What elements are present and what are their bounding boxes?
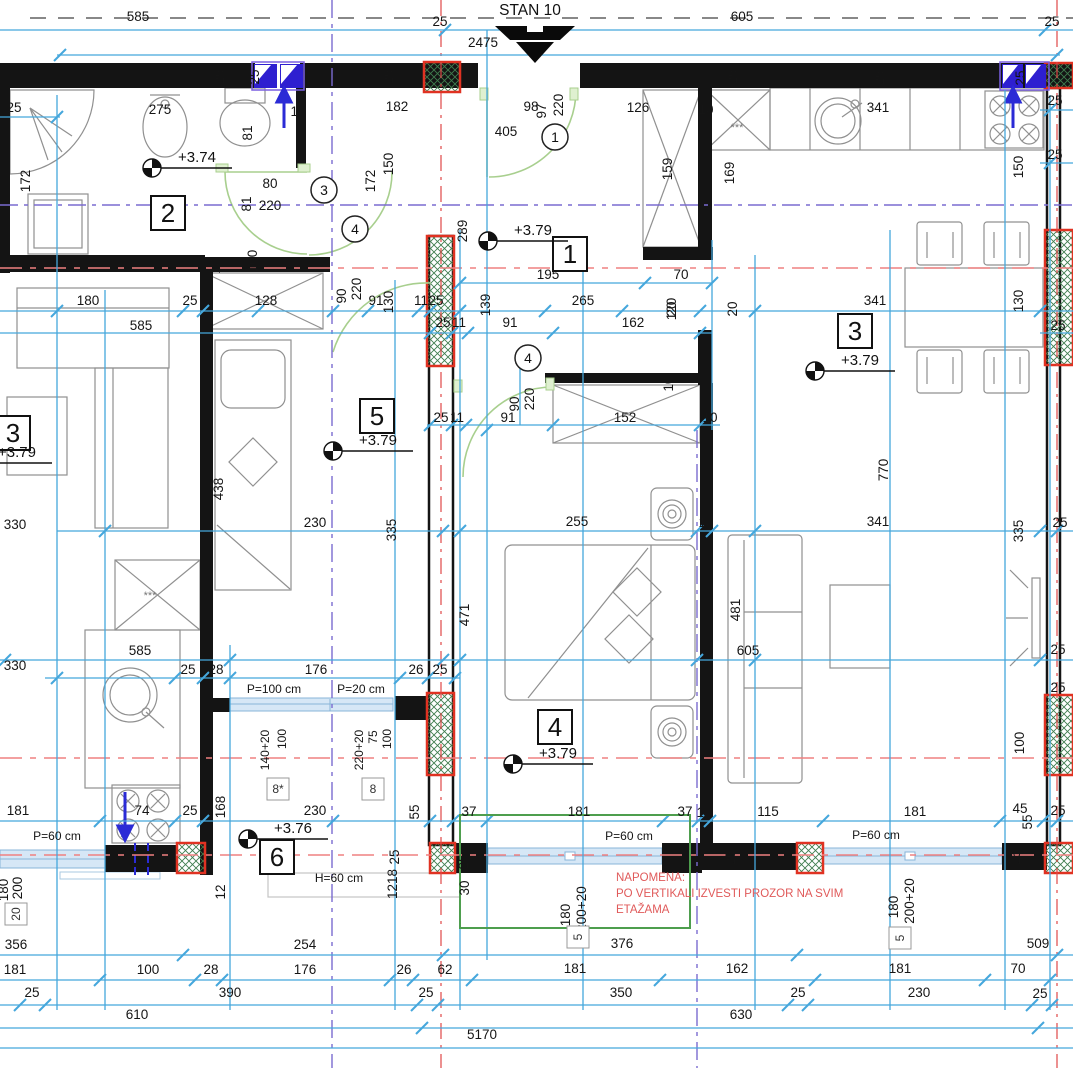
dimension-text: 25 bbox=[247, 69, 262, 84]
level-value: +3.76 bbox=[274, 820, 312, 837]
dimension-text: P=60 cm bbox=[33, 829, 81, 843]
dimension-text: P=100 cm bbox=[247, 682, 301, 696]
dimension-text: 140+20 bbox=[258, 729, 272, 770]
level-value: +3.79 bbox=[0, 444, 36, 461]
dimension-text: H=60 cm bbox=[315, 871, 363, 885]
dimension-text: 200 bbox=[10, 877, 25, 900]
dimension-text: 25 bbox=[180, 662, 195, 677]
dimension-text: 509 bbox=[1027, 936, 1050, 951]
dimension-text: 180 bbox=[886, 896, 901, 919]
level-value: +3.79 bbox=[539, 745, 577, 762]
dimension-text: 176 bbox=[305, 662, 328, 677]
dimension-text: 289 bbox=[455, 220, 470, 243]
dimension-text: P=60 cm bbox=[605, 829, 653, 843]
sofa-living bbox=[728, 535, 802, 783]
dimension-text: 230 bbox=[908, 985, 931, 1000]
dimension-text: 81 bbox=[239, 196, 254, 211]
dimension-text: 168 bbox=[213, 796, 228, 819]
nightstand bbox=[651, 488, 693, 540]
room-number-label: 5 bbox=[370, 401, 384, 431]
dimension-text: 376 bbox=[611, 936, 634, 951]
dimension-text: 330 bbox=[4, 517, 27, 532]
level-value: +3.74 bbox=[178, 149, 216, 166]
dimension-text: 25 bbox=[24, 985, 39, 1000]
freezer-neighbour bbox=[115, 560, 200, 630]
dimension-text: 1218 bbox=[385, 869, 400, 899]
note-text: PO VERTIKALI IZVESTI PROZOR NA SVIM bbox=[616, 888, 843, 900]
dimension-text: 115 bbox=[757, 804, 779, 819]
room-number-label: 3 bbox=[848, 316, 862, 346]
level-symbol-quadrant bbox=[504, 764, 513, 773]
column bbox=[430, 843, 455, 873]
window-id-label: 8 bbox=[370, 782, 377, 796]
dimension-text: 181 bbox=[904, 804, 927, 819]
dimension-text: 181 bbox=[7, 803, 30, 818]
dimension-text: 10 bbox=[696, 805, 711, 820]
double-bed bbox=[505, 488, 695, 758]
dimension-text: 169 bbox=[722, 162, 737, 185]
dimension-text: 10 bbox=[290, 104, 305, 119]
dimension-text: 220 bbox=[259, 198, 282, 213]
level-mark: +3.79 bbox=[504, 745, 593, 773]
dimension-text: 25 bbox=[435, 315, 450, 330]
dimension-text: 74 bbox=[134, 803, 150, 818]
dimension-text: 220 bbox=[551, 94, 566, 117]
dimension-text: 341 bbox=[867, 100, 890, 115]
dimension-text: 481 bbox=[728, 599, 743, 622]
dimension-text: P=20 cm bbox=[337, 682, 385, 696]
dimension-text: 5170 bbox=[467, 1027, 497, 1042]
door-type-number: 3 bbox=[320, 182, 328, 198]
dimension-text: 438 bbox=[211, 478, 226, 501]
dimension-text: 100 bbox=[1012, 732, 1027, 755]
level-symbol-quadrant bbox=[248, 830, 257, 839]
dimension-text: 25 bbox=[387, 849, 402, 864]
level-value: +3.79 bbox=[359, 432, 397, 449]
dimension-text: 335 bbox=[1011, 520, 1026, 543]
dimension-text: 330 bbox=[4, 658, 27, 673]
level-symbol-quadrant bbox=[815, 362, 824, 371]
dimension-text: 120 bbox=[664, 298, 679, 321]
level-symbol-quadrant bbox=[806, 371, 815, 380]
door-frame bbox=[570, 88, 578, 100]
level-value: +3.79 bbox=[514, 222, 552, 239]
dimension-text: 220 bbox=[349, 278, 364, 301]
dimension-text: 200+20 bbox=[574, 886, 589, 931]
door-type-number: 4 bbox=[524, 350, 532, 366]
dimension-text: 25 bbox=[456, 854, 471, 869]
nightstand bbox=[651, 706, 693, 758]
entrance-marker bbox=[495, 26, 575, 63]
dimension-text: 139 bbox=[478, 294, 493, 317]
dimension-text: 37 bbox=[461, 804, 476, 819]
level-symbol-quadrant bbox=[143, 168, 152, 177]
door-type-number: 4 bbox=[351, 221, 359, 237]
note-text: NAPOMENA: bbox=[616, 872, 685, 884]
level-symbol-quadrant bbox=[479, 241, 488, 250]
floor-plan-page: STAN 10 58525247560525252751728181100108… bbox=[0, 0, 1073, 1068]
dimension-text: 26 bbox=[396, 962, 411, 977]
dimension-text: 610 bbox=[126, 1007, 149, 1022]
dimension-text: 172 bbox=[363, 170, 378, 193]
column bbox=[177, 843, 205, 873]
room-number-label: 2 bbox=[161, 198, 175, 228]
dimension-text: 10 bbox=[698, 102, 713, 117]
dimension-text: 220 bbox=[522, 388, 537, 411]
dimension-text: 25 bbox=[381, 69, 396, 84]
dimension-text: 356 bbox=[5, 937, 28, 952]
dimension-text: 11 bbox=[414, 293, 428, 308]
dimension-text: 10 bbox=[702, 410, 717, 425]
window-id-label: 20 bbox=[9, 907, 23, 921]
dimension-text: 181 bbox=[889, 961, 912, 976]
dimension-text: 180 bbox=[77, 293, 100, 308]
level-symbol-quadrant bbox=[333, 442, 342, 451]
dimension-text: P=60 cm bbox=[852, 828, 900, 842]
level-value: +3.79 bbox=[841, 352, 879, 369]
room-number-label: 4 bbox=[548, 712, 562, 742]
dimension-text: 25 bbox=[1050, 318, 1065, 333]
fridge bbox=[706, 90, 770, 150]
dimension-text: 10 bbox=[661, 376, 676, 391]
dimension-text: 10 bbox=[208, 258, 223, 273]
dimension-text: 585 bbox=[127, 9, 150, 24]
level-symbol-quadrant bbox=[488, 232, 497, 241]
dimension-text: 605 bbox=[737, 643, 760, 658]
coffee-table bbox=[830, 585, 890, 668]
dimension-text: 100 bbox=[137, 962, 160, 977]
level-symbol-quadrant bbox=[152, 159, 161, 168]
dimension-text: 770 bbox=[876, 459, 891, 482]
dimension-text: 341 bbox=[864, 293, 887, 308]
dimension-text: 80 bbox=[262, 176, 277, 191]
dimension-text: 70 bbox=[1010, 961, 1025, 976]
column bbox=[1045, 230, 1073, 365]
dimension-text: 25 bbox=[725, 69, 740, 84]
dimension-text: 255 bbox=[566, 514, 589, 529]
dimension-text: 162 bbox=[622, 315, 645, 330]
dimension-text: 181 bbox=[568, 804, 591, 819]
floor-plan-canvas: STAN 10 58525247560525252751728181100108… bbox=[0, 0, 1073, 1068]
dimension-text: 10 bbox=[698, 515, 713, 530]
kitchen-sink bbox=[815, 98, 862, 144]
dimension-text: 100 bbox=[380, 729, 394, 749]
dimension-text: 230 bbox=[304, 803, 327, 818]
dimension-text: 150 bbox=[1011, 156, 1026, 179]
room-number-label: 6 bbox=[270, 842, 284, 872]
dimension-text: 28 bbox=[203, 962, 218, 977]
dimension-text: 75 bbox=[366, 730, 380, 744]
kitchen-counter bbox=[770, 88, 1044, 150]
single-bed bbox=[215, 340, 291, 590]
dimension-text: 97 bbox=[534, 103, 549, 118]
level-mark: +3.79 bbox=[324, 432, 413, 460]
dimension-text: 25 bbox=[1044, 14, 1059, 29]
dimension-text: 25 bbox=[1050, 642, 1065, 657]
dimension-text: 90 bbox=[334, 288, 349, 303]
dimension-text: 70 bbox=[673, 267, 688, 282]
dimension-text: 30 bbox=[457, 880, 472, 895]
dimension-text: 25 bbox=[1032, 986, 1047, 1001]
dimension-text: 605 bbox=[731, 9, 754, 24]
dimension-text: 11 bbox=[452, 315, 466, 330]
dimension-text: 182 bbox=[386, 99, 409, 114]
washing-machine-inner bbox=[34, 200, 82, 248]
dimension-text: 390 bbox=[219, 985, 242, 1000]
dimension-text: 26 bbox=[408, 662, 423, 677]
door-frame bbox=[454, 380, 462, 392]
dimension-text: 2475 bbox=[468, 35, 498, 50]
dimension-text: 37 bbox=[677, 804, 692, 819]
door-type-number: 1 bbox=[551, 129, 559, 145]
dimension-text: 162 bbox=[726, 961, 749, 976]
dimension-text: 200+20 bbox=[902, 878, 917, 923]
dimension-text: 585 bbox=[130, 318, 153, 333]
window-id-label: 5 bbox=[571, 933, 585, 940]
dimension-text: 275 bbox=[149, 102, 172, 117]
dimension-text: 25 bbox=[432, 14, 447, 29]
dimension-text: 25 bbox=[872, 70, 887, 85]
dimension-text: 25 bbox=[723, 850, 738, 865]
dimension-text: 55 bbox=[407, 804, 422, 819]
dimension-text: 25 bbox=[6, 100, 21, 115]
dimension-text: 28 bbox=[208, 662, 223, 677]
dimension-text: 150 bbox=[381, 153, 396, 176]
walls bbox=[0, 63, 1073, 875]
washing-machine bbox=[28, 194, 88, 254]
level-symbol-quadrant bbox=[513, 755, 522, 764]
balcony-slab bbox=[268, 873, 460, 897]
tv bbox=[1006, 570, 1040, 666]
dimension-text: 91 bbox=[500, 410, 515, 425]
level-symbol-quadrant bbox=[239, 839, 248, 848]
dimension-text: 11 bbox=[450, 410, 464, 425]
column bbox=[1045, 695, 1073, 775]
dimension-text: 181 bbox=[4, 962, 27, 977]
dimension-text: 25 bbox=[1047, 147, 1062, 162]
dimension-text: 630 bbox=[730, 1007, 753, 1022]
dimension-text: 81 bbox=[240, 125, 255, 140]
dimension-text: 25 bbox=[1013, 70, 1028, 85]
dimension-text: 25 bbox=[428, 293, 443, 308]
dimension-text: 176 bbox=[294, 962, 317, 977]
dimension-text: *** bbox=[731, 122, 745, 134]
dimension-text: 55 bbox=[1020, 814, 1035, 829]
window-id-label: 5 bbox=[893, 934, 907, 941]
dimension-text: 25 bbox=[1050, 680, 1065, 695]
dimension-text: 220+20 bbox=[352, 729, 366, 770]
dimension-text: 62 bbox=[437, 962, 452, 977]
dimension-text: 335 bbox=[384, 519, 399, 542]
dimension-text: 254 bbox=[294, 937, 317, 952]
dimension-text: 25 bbox=[1052, 515, 1067, 530]
dimension-text: 172 bbox=[18, 170, 33, 193]
dimension-text: 25 bbox=[418, 985, 433, 1000]
dimension-text: 91 bbox=[502, 315, 517, 330]
column bbox=[424, 62, 460, 92]
door-frame bbox=[298, 164, 310, 172]
dimension-text: 12 bbox=[213, 884, 228, 899]
dimension-text: 100 bbox=[245, 250, 260, 273]
dimension-text: 25 bbox=[1047, 93, 1062, 108]
window-id-label: 8* bbox=[272, 782, 284, 796]
dimension-text: 25 bbox=[790, 985, 805, 1000]
room-number-label: 1 bbox=[563, 239, 577, 269]
dimension-text: 230 bbox=[304, 515, 327, 530]
level-mark: +3.74 bbox=[143, 149, 232, 177]
column bbox=[797, 843, 823, 873]
level-mark: +3.79 bbox=[0, 444, 52, 472]
dimension-text: 45 bbox=[1012, 801, 1027, 816]
level-mark: +3.79 bbox=[806, 352, 895, 380]
dimension-text: 341 bbox=[867, 514, 890, 529]
note-text: ETAŽAMA bbox=[616, 903, 670, 916]
dimension-text: 350 bbox=[610, 985, 633, 1000]
dimension-text: 100 bbox=[275, 729, 289, 749]
dimension-text: 25 bbox=[1008, 850, 1023, 865]
dimension-text: 25 bbox=[182, 803, 197, 818]
dimension-text: 126 bbox=[627, 100, 650, 115]
dimension-text: 25 bbox=[433, 410, 448, 425]
shower bbox=[10, 90, 94, 174]
dimension-text: 471 bbox=[457, 604, 472, 627]
column bbox=[1045, 843, 1073, 873]
dimension-text: 159 bbox=[660, 158, 675, 181]
dimension-text: 25 bbox=[182, 293, 197, 308]
dimension-text: 130 bbox=[381, 291, 396, 314]
dimension-text: 180 bbox=[558, 904, 573, 927]
dimension-text: 181 bbox=[564, 961, 587, 976]
dimension-text: 20 bbox=[725, 301, 740, 316]
dimension-text: 265 bbox=[572, 293, 595, 308]
dimension-text: 152 bbox=[614, 410, 637, 425]
dimension-text: 25 bbox=[1050, 803, 1065, 818]
level-symbol-quadrant bbox=[324, 451, 333, 460]
dimension-text: 585 bbox=[129, 643, 152, 658]
door-frame bbox=[546, 378, 554, 390]
window-sill bbox=[60, 872, 160, 879]
dimension-text: 25 bbox=[432, 662, 447, 677]
columns bbox=[177, 62, 1073, 873]
dimension-text: 130 bbox=[1011, 290, 1026, 313]
dimension-text: *** bbox=[144, 590, 158, 602]
dimension-text: 405 bbox=[495, 124, 518, 139]
dimension-text: 25 bbox=[212, 69, 227, 84]
apartment-title: STAN 10 bbox=[499, 2, 561, 19]
dimension-text: 128 bbox=[255, 293, 278, 308]
